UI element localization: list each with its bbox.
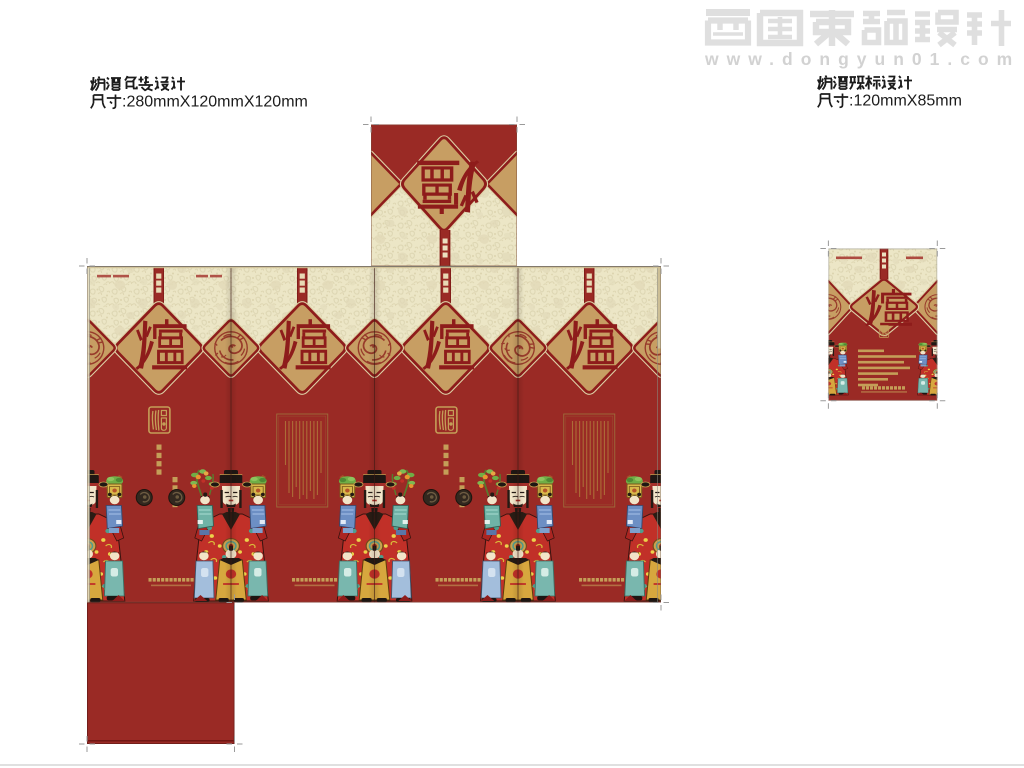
- svg-text::280mmX120mmX120mm: :280mmX120mmX120mm: [122, 94, 308, 111]
- svg-text:www.dongyun01.com: www.dongyun01.com: [704, 49, 1020, 69]
- svg-text::120mmX85mm: :120mmX85mm: [849, 93, 962, 110]
